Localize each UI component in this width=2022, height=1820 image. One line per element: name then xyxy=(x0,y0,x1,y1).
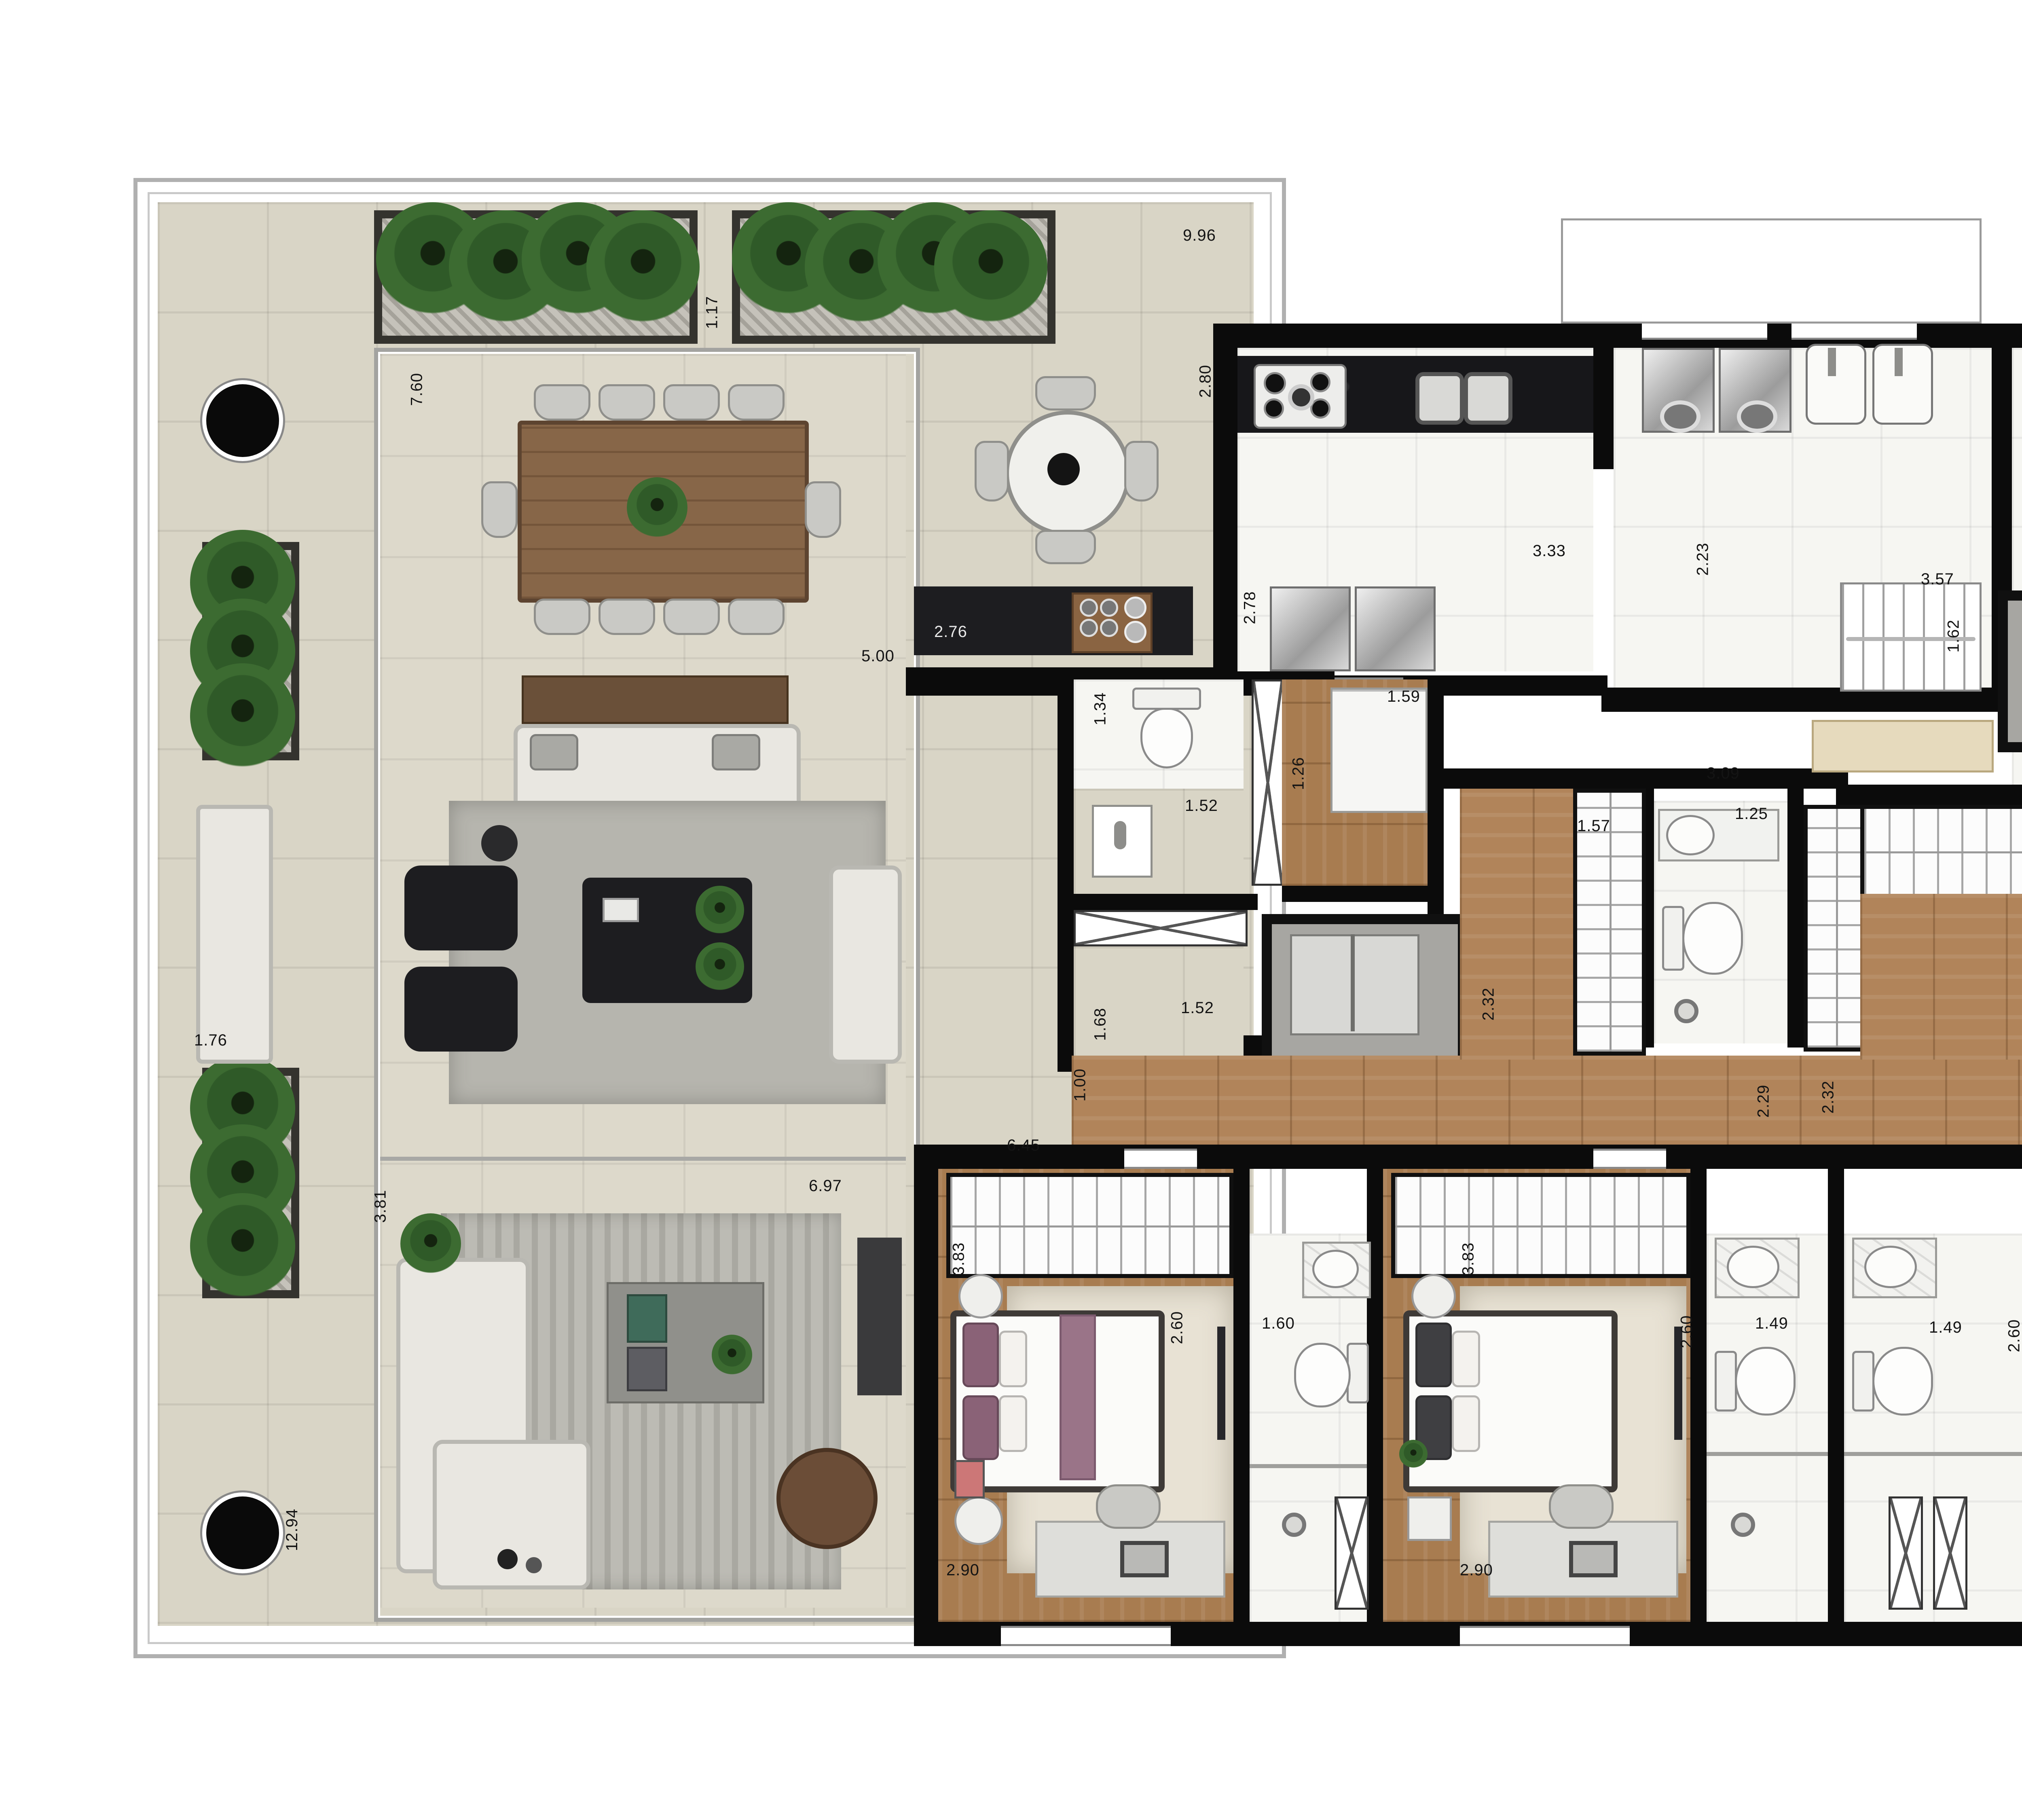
sofa-cushion xyxy=(530,734,578,770)
decor-stools xyxy=(526,1557,542,1573)
dim-label: 1.60 xyxy=(1262,1314,1295,1333)
bath-sink xyxy=(1864,1246,1917,1288)
door-opening xyxy=(1124,1149,1197,1169)
dim-label: 1.26 xyxy=(1289,757,1307,790)
dim-label: 3.57 xyxy=(1921,570,1954,588)
plant-icon xyxy=(400,1213,461,1274)
dim-label: 1.76 xyxy=(194,1031,227,1050)
wall xyxy=(1836,785,2022,805)
dim-label: 1.17 xyxy=(703,296,721,329)
wall xyxy=(1233,1169,1250,1626)
dim-label: 1.49 xyxy=(1755,1314,1788,1333)
dining-chair xyxy=(599,384,655,421)
dim-label: 7.60 xyxy=(408,373,426,406)
dim-label: 2.78 xyxy=(1241,591,1259,624)
hall-vertical xyxy=(1460,789,1573,1060)
bed-runner xyxy=(1060,1314,1096,1480)
stove-burner xyxy=(1264,398,1284,419)
nightstand xyxy=(958,1274,1003,1318)
shower-head xyxy=(1731,1513,1755,1537)
pillow xyxy=(1452,1395,1480,1452)
dining-chair xyxy=(599,599,655,635)
laptop xyxy=(1120,1541,1169,1577)
dining-chair xyxy=(805,481,841,538)
dim-label: 2.23 xyxy=(1694,543,1712,576)
dim-label: 6.97 xyxy=(809,1177,842,1195)
nightstand xyxy=(954,1496,1003,1545)
family-tv-panel xyxy=(857,1238,902,1395)
toilet xyxy=(1872,1347,1933,1416)
bath-sink xyxy=(1312,1250,1359,1288)
plant-icon xyxy=(696,942,744,991)
freezer xyxy=(1355,586,1436,671)
dim-label: 3.81 xyxy=(371,1190,389,1223)
dim-label: 1.34 xyxy=(1091,692,1109,726)
toilet-tank xyxy=(1852,1351,1874,1412)
table-centerpiece xyxy=(627,477,687,538)
roof-edge xyxy=(1561,218,1982,324)
wardrobe xyxy=(1804,805,1868,1052)
book xyxy=(627,1294,667,1343)
dim-label: 1.52 xyxy=(1181,999,1214,1017)
dim-label: 2.76 xyxy=(934,623,967,641)
dim-label: 1.00 xyxy=(1071,1069,1089,1102)
shower-divider xyxy=(1250,1464,1367,1468)
bath-sink xyxy=(1727,1246,1779,1288)
shower-head xyxy=(1282,1513,1306,1537)
bath-sink xyxy=(1666,815,1715,855)
shower-divider xyxy=(1844,1452,2022,1456)
side-table xyxy=(481,825,518,861)
shower-divider xyxy=(1707,1452,1828,1456)
kitchen-sink xyxy=(1464,372,1512,425)
sofa-cushion xyxy=(712,734,760,770)
dim-label: 3.33 xyxy=(1533,542,1566,560)
toilet-tank xyxy=(1715,1351,1737,1412)
duct xyxy=(1933,1496,1967,1610)
glass-divider xyxy=(380,1157,906,1161)
wall xyxy=(1058,675,1074,1072)
pantry-floor xyxy=(1074,946,1244,1060)
plant-icon xyxy=(696,886,744,934)
wall xyxy=(1690,1169,1707,1626)
plant-icon xyxy=(934,210,1047,324)
dim-label: 3.09 xyxy=(1707,764,1740,783)
dining-chair xyxy=(663,599,720,635)
dim-label: 12.94 xyxy=(283,1509,301,1551)
dim-label: 2.90 xyxy=(946,1561,979,1579)
plant-icon xyxy=(712,1335,752,1375)
dim-label: 2.80 xyxy=(1196,365,1214,398)
elevator-door-seam xyxy=(1351,934,1355,1031)
terrace-bench xyxy=(196,805,273,1064)
dining-chair xyxy=(534,384,590,421)
toilet xyxy=(1735,1347,1796,1416)
laundry-tank xyxy=(1872,344,1933,425)
plant-icon xyxy=(190,1193,295,1298)
plant-icon xyxy=(1399,1440,1428,1468)
dim-label: 2.60 xyxy=(1677,1315,1696,1348)
round-table-center xyxy=(1047,453,1080,485)
hall-cabinet xyxy=(1812,720,1994,772)
grill-burner xyxy=(1100,599,1118,617)
armchair xyxy=(404,866,518,950)
bedroom1-tv xyxy=(1217,1327,1225,1440)
washer-door xyxy=(1660,400,1701,433)
armchair xyxy=(404,967,518,1052)
door-opening xyxy=(1593,1149,1666,1169)
plant-icon xyxy=(190,663,295,768)
wall xyxy=(914,1145,2022,1169)
dim-label: 2.29 xyxy=(1754,1085,1772,1118)
sink-faucet xyxy=(1114,821,1126,849)
dim-label: 1.52 xyxy=(1185,797,1218,815)
tray xyxy=(603,898,639,922)
laptop xyxy=(1569,1541,1618,1577)
dim-label: 2.90 xyxy=(1460,1561,1493,1579)
grill-pan xyxy=(1124,621,1146,643)
bedroom1-closet xyxy=(946,1173,1233,1278)
dining-chair xyxy=(534,599,590,635)
toilet-tank xyxy=(1662,906,1684,971)
dim-label: 6.45 xyxy=(1007,1136,1040,1155)
toilet xyxy=(1682,902,1743,975)
pillow xyxy=(962,1323,999,1387)
dining-chair xyxy=(728,384,785,421)
terrace-chair xyxy=(1035,376,1096,411)
dining-chair xyxy=(728,599,785,635)
terrace-chair xyxy=(1035,530,1096,564)
plant-icon xyxy=(586,210,700,324)
wall xyxy=(1992,324,2022,348)
fridge xyxy=(1270,586,1351,671)
toilet xyxy=(1294,1343,1351,1407)
dryer-door xyxy=(1737,400,1777,433)
dim-label: 2.32 xyxy=(1819,1081,1837,1114)
pillow xyxy=(999,1395,1027,1452)
wall xyxy=(1593,324,1614,469)
bedroom2-closet xyxy=(1391,1173,1690,1278)
dim-label: 1.57 xyxy=(1577,817,1610,835)
dim-label: 2.32 xyxy=(1479,988,1497,1021)
desk-chair xyxy=(1549,1484,1614,1529)
wall xyxy=(1213,324,1237,708)
nightstand xyxy=(1407,1496,1452,1541)
dim-label: 2.60 xyxy=(2005,1319,2022,1352)
dim-label: 1.62 xyxy=(1944,620,1963,653)
desk-chair xyxy=(1096,1484,1161,1529)
nightstand xyxy=(1411,1274,1456,1318)
dining-chair xyxy=(663,384,720,421)
wall xyxy=(1282,886,1444,902)
grill-pan xyxy=(1124,597,1146,619)
grill-burner xyxy=(1080,599,1098,617)
kitchen-sink xyxy=(1415,372,1464,425)
wall xyxy=(1058,894,1258,910)
pouf xyxy=(776,1448,878,1549)
magazine xyxy=(954,1460,985,1498)
shower-head xyxy=(1674,999,1698,1023)
duct xyxy=(1889,1496,1923,1610)
terrace-chair xyxy=(975,441,1009,502)
dim-label: 2.60 xyxy=(1168,1311,1186,1344)
tv-console xyxy=(522,675,789,724)
window xyxy=(1460,1626,1630,1646)
dim-label: 1.68 xyxy=(1091,1008,1109,1041)
wall xyxy=(1787,785,1804,1048)
duct xyxy=(1074,910,1248,946)
pillow xyxy=(962,1395,999,1460)
dim-label: 1.49 xyxy=(1929,1318,1962,1337)
stove-burner xyxy=(1264,372,1286,394)
laundry-tank xyxy=(1806,344,1866,425)
wall xyxy=(914,1145,938,1646)
pillow xyxy=(1452,1331,1480,1387)
elevator-door xyxy=(1290,934,1419,1035)
stove-burner xyxy=(1310,372,1330,392)
closet-shelf xyxy=(1330,688,1428,813)
column xyxy=(202,380,283,461)
wall xyxy=(1828,1169,1844,1626)
dim-label: 3.83 xyxy=(950,1242,968,1276)
dim-label: 1.59 xyxy=(1387,688,1420,706)
pillow xyxy=(1415,1323,1452,1387)
dim-label: 1.25 xyxy=(1735,805,1768,823)
corridor-wardrobe xyxy=(1860,805,2022,898)
dim-label: 5.00 xyxy=(861,647,895,665)
duct xyxy=(1252,679,1284,886)
column xyxy=(202,1492,283,1573)
corridor-floor xyxy=(1860,894,2022,1060)
duct xyxy=(1335,1496,1369,1610)
book xyxy=(627,1347,667,1391)
chaise xyxy=(829,866,902,1064)
dim-label: 9.96 xyxy=(1183,226,1216,245)
dim-label: 3.83 xyxy=(1459,1242,1477,1276)
toilet xyxy=(1140,708,1193,768)
service-elevator xyxy=(1998,590,2022,752)
tank-faucet xyxy=(1895,348,1903,376)
grill-burner xyxy=(1100,619,1118,637)
toilet-tank xyxy=(1132,688,1201,710)
tank-faucet xyxy=(1828,348,1836,376)
wall xyxy=(1367,1169,1383,1626)
window xyxy=(1001,1626,1171,1646)
stove-burner xyxy=(1288,384,1314,411)
grill-burner xyxy=(1080,619,1098,637)
decor-stools xyxy=(497,1549,518,1569)
pillow xyxy=(999,1331,1027,1387)
floor-plan: 9.96 1.17 7.60 2.80 5.00 2.76 2.78 1.34 … xyxy=(0,0,2022,1820)
terrace-chair xyxy=(1124,441,1159,502)
dining-chair xyxy=(481,481,518,538)
